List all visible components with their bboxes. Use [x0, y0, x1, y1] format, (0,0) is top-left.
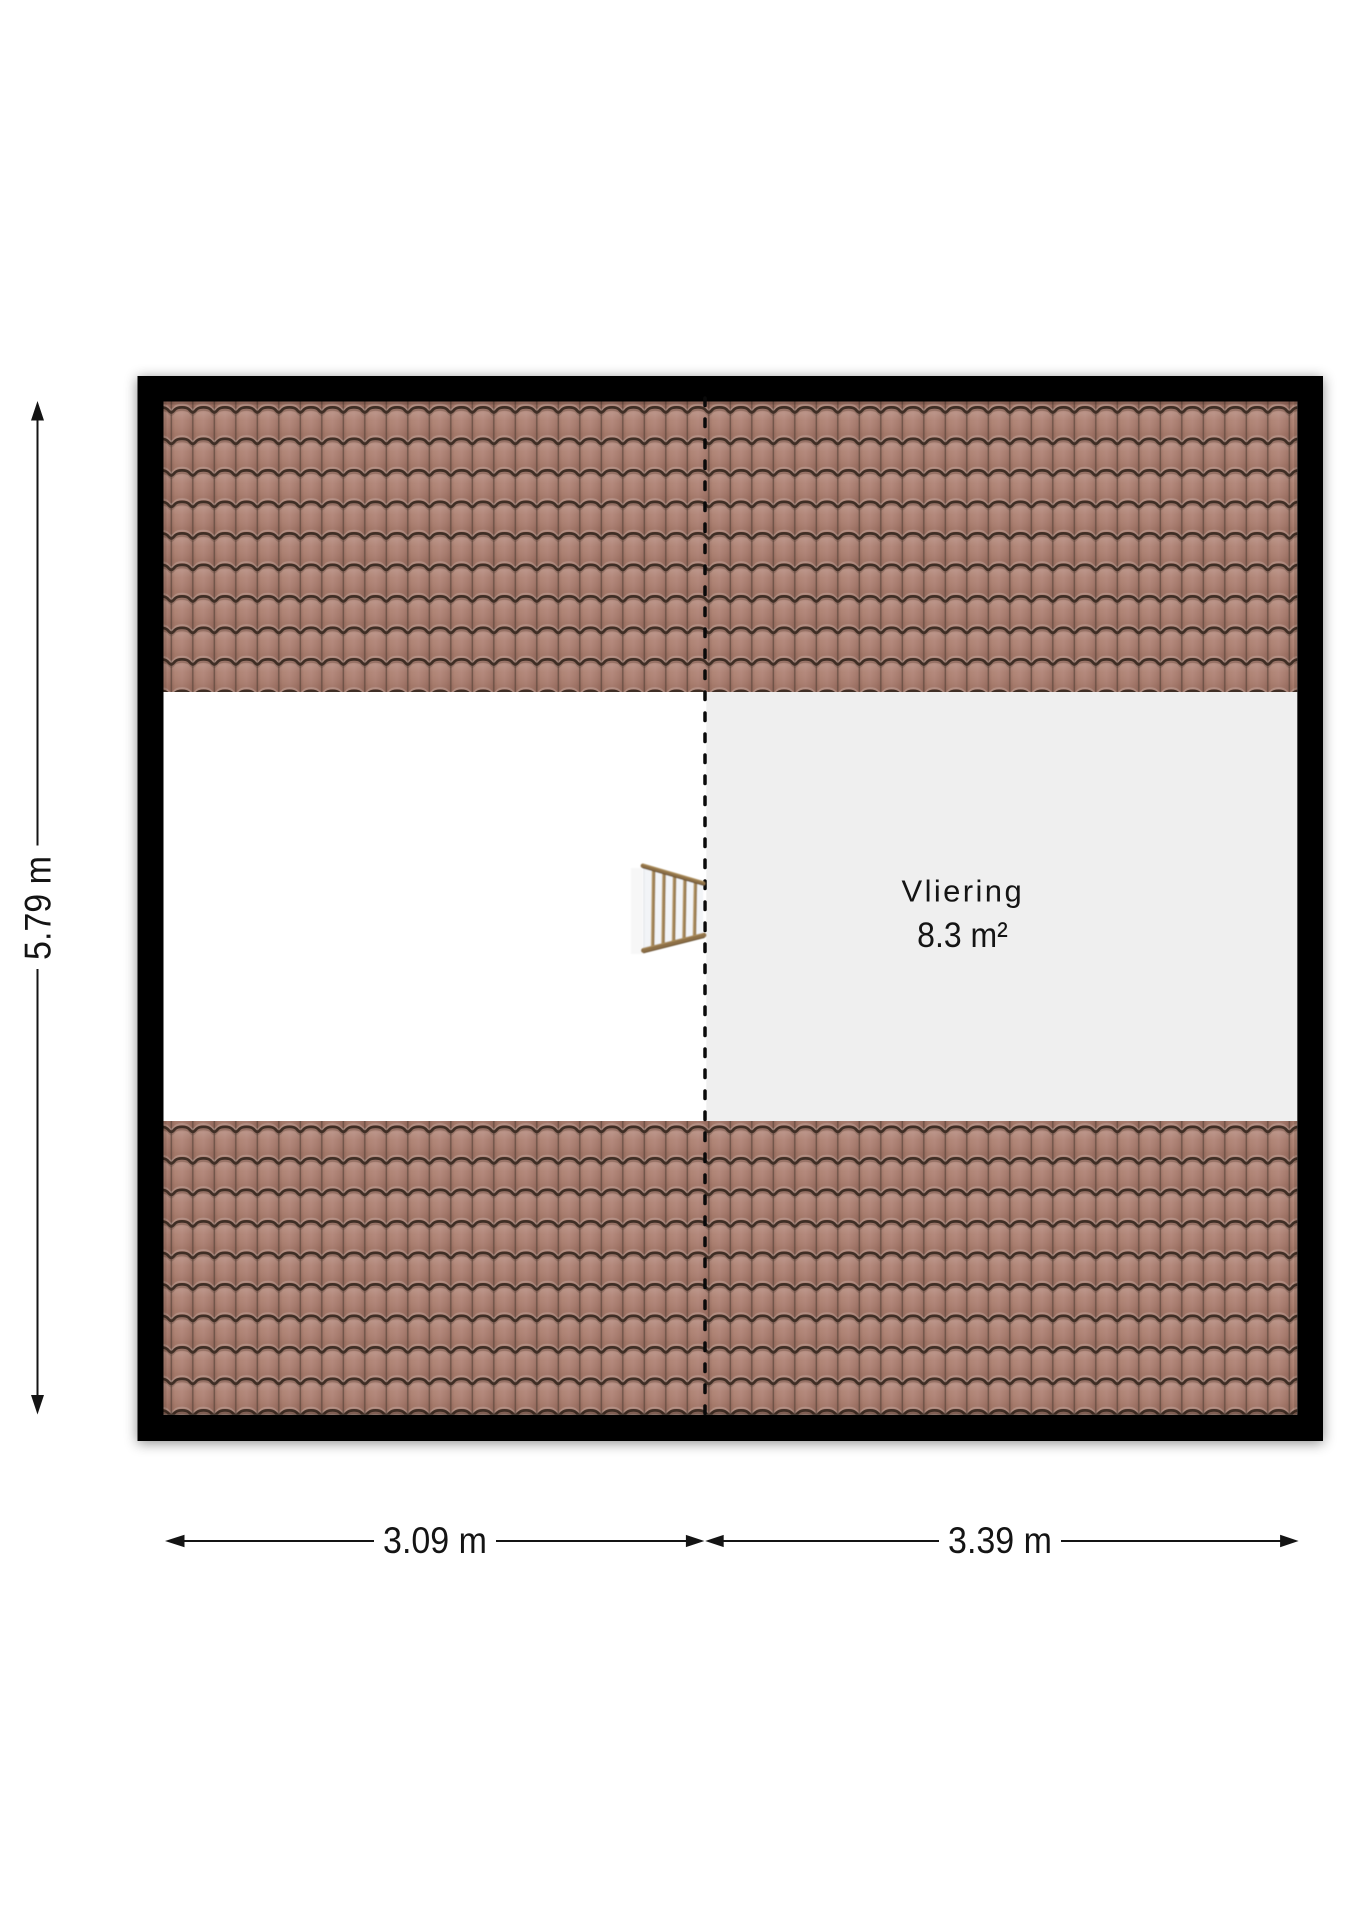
svg-text:8.3 m²: 8.3 m²	[917, 916, 1008, 956]
svg-text:3.09 m: 3.09 m	[383, 1520, 487, 1562]
svg-text:3.39 m: 3.39 m	[948, 1520, 1052, 1562]
svg-text:Vliering: Vliering	[902, 874, 1025, 909]
svg-text:5.79 m: 5.79 m	[17, 856, 59, 960]
